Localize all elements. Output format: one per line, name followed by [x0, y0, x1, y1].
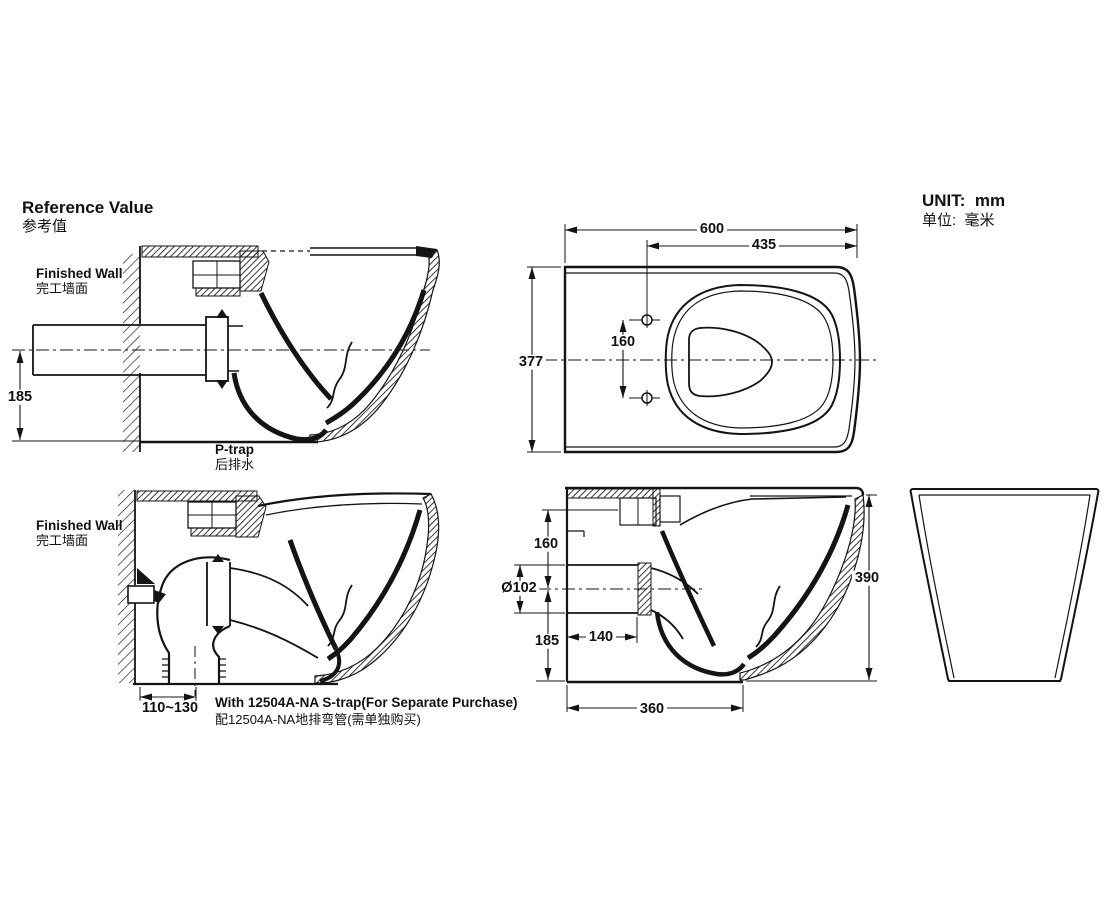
page-title-zh: 参考值: [22, 218, 67, 235]
dim-label-160-section: 160: [531, 537, 561, 552]
s-trap-side-view-drawing: [95, 478, 525, 723]
finished-wall-label-bottom-zh: 完工墙面: [36, 534, 88, 549]
back-view-outline: [911, 489, 1099, 681]
finished-wall-label-bottom: Finished Wall: [36, 518, 123, 534]
dim-label-185-p-trap: 185: [5, 390, 35, 405]
dim-label-diameter-102: Ø102: [498, 581, 539, 596]
dim-label-110-130: 110~130: [139, 701, 201, 716]
unit-label: UNIT: mm: [922, 191, 1005, 211]
dim-label-160-plan: 160: [608, 335, 638, 350]
unit-label-zh: 单位: 毫米: [922, 212, 995, 229]
p-trap-caption: P-trap: [215, 442, 254, 458]
page-title: Reference Value: [22, 198, 153, 218]
technical-drawing-page: Reference Value 参考值 UNIT: mm 单位: 毫米 Fini…: [0, 0, 1120, 920]
dim-label-185-section: 185: [532, 634, 562, 649]
dim-label-360: 360: [637, 702, 667, 717]
s-trap-elbow-pipe: [128, 554, 230, 696]
section-view-drawing: [495, 480, 895, 725]
s-trap-caption: With 12504A-NA S-trap(For Separate Purch…: [215, 695, 517, 711]
toilet-body-section: [137, 491, 439, 683]
finished-wall-label-top: Finished Wall: [36, 266, 123, 282]
dim-label-435: 435: [749, 238, 779, 253]
p-trap-caption-zh: 后排水: [215, 458, 254, 473]
p-trap-pipe: [12, 309, 430, 389]
toilet-body-section: [514, 487, 864, 682]
finished-wall-label-top-zh: 完工墙面: [36, 282, 88, 297]
dim-label-390: 390: [852, 571, 882, 586]
dim-label-140: 140: [586, 630, 616, 645]
s-trap-caption-zh: 配12504A-NA地排弯管(需单独购买): [215, 713, 421, 728]
finished-wall-hatch: [123, 246, 140, 452]
plan-view-drawing: [500, 213, 900, 465]
dim-label-600: 600: [697, 222, 727, 237]
dim-label-377: 377: [516, 355, 546, 370]
back-view-drawing: [900, 478, 1110, 693]
toilet-body-section: [140, 246, 439, 442]
